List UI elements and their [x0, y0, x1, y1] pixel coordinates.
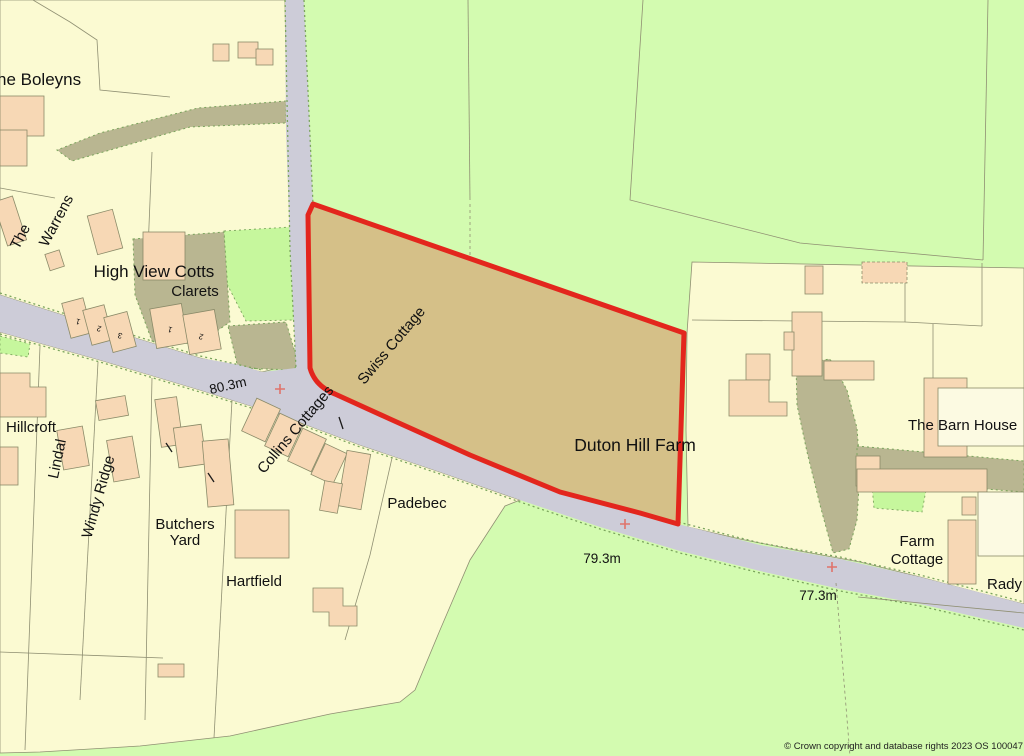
label-rady: Rady [987, 576, 1023, 593]
building-glasshouse [862, 262, 907, 283]
building [784, 332, 794, 350]
label-cottage: Cottage [891, 551, 944, 568]
building [213, 44, 229, 61]
copyright-notice: © Crown copyright and database rights 20… [784, 741, 1023, 752]
building [805, 266, 823, 294]
label-padebec: Padebec [387, 495, 447, 512]
building [256, 49, 273, 65]
building [978, 492, 1024, 556]
building-barn-row [857, 469, 987, 492]
building [792, 312, 822, 376]
map-canvas: he Boleyns The Warrens High View Cotts C… [0, 0, 1024, 756]
building [202, 439, 234, 507]
building [238, 42, 258, 58]
building-farm-cottage [948, 520, 976, 584]
building [0, 130, 27, 166]
label-hillcroft: Hillcroft [6, 419, 57, 436]
label-elevation-79: 79.3m [583, 551, 621, 566]
label-boleyns: he Boleyns [0, 70, 81, 89]
building [824, 361, 874, 380]
building [235, 510, 289, 558]
label-high-view-cotts: High View Cotts [94, 262, 215, 281]
building [158, 664, 184, 677]
label-duton-hill-farm: Duton Hill Farm [574, 435, 696, 455]
yard-junction [228, 322, 298, 370]
label-hartfield: Hartfield [226, 573, 282, 590]
label-yard: Yard [170, 532, 201, 549]
label-barn-house: The Barn House [908, 417, 1017, 434]
os-map: he Boleyns The Warrens High View Cotts C… [0, 0, 1024, 756]
label-farm: Farm [900, 533, 935, 550]
label-elevation-77: 77.3m [799, 588, 837, 603]
building [183, 310, 221, 355]
building [0, 447, 18, 485]
building [962, 497, 976, 515]
label-clarets: Clarets [171, 283, 219, 300]
building [746, 354, 770, 380]
label-butchers: Butchers [155, 516, 214, 533]
building [173, 424, 206, 468]
